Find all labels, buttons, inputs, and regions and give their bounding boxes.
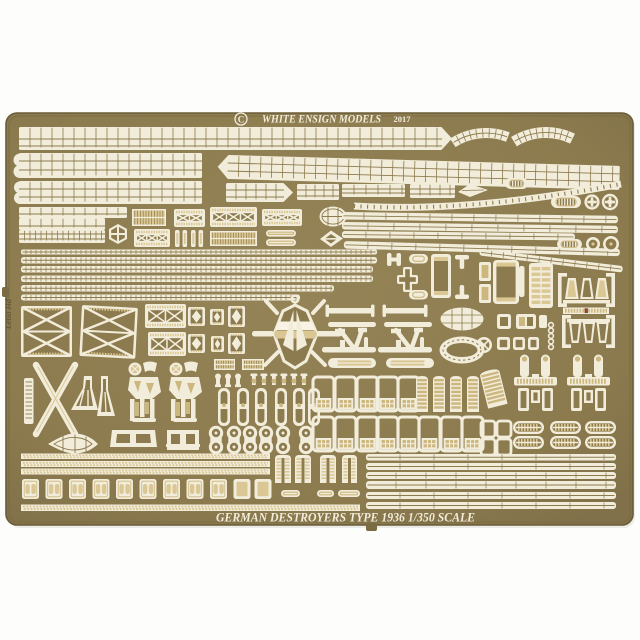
svg-text:GERMAN DESTROYERS TYPE 1936: GERMAN DESTROYERS TYPE 1936 1/350 SCALE [216, 511, 475, 525]
svg-text:2017: 2017 [394, 114, 412, 124]
svg-text:Letia Hd: Letia Hd [3, 298, 13, 330]
svg-text:WHITE ENSIGN MODELS: WHITE ENSIGN MODELS [262, 112, 381, 126]
svg-text:C: C [238, 115, 245, 125]
